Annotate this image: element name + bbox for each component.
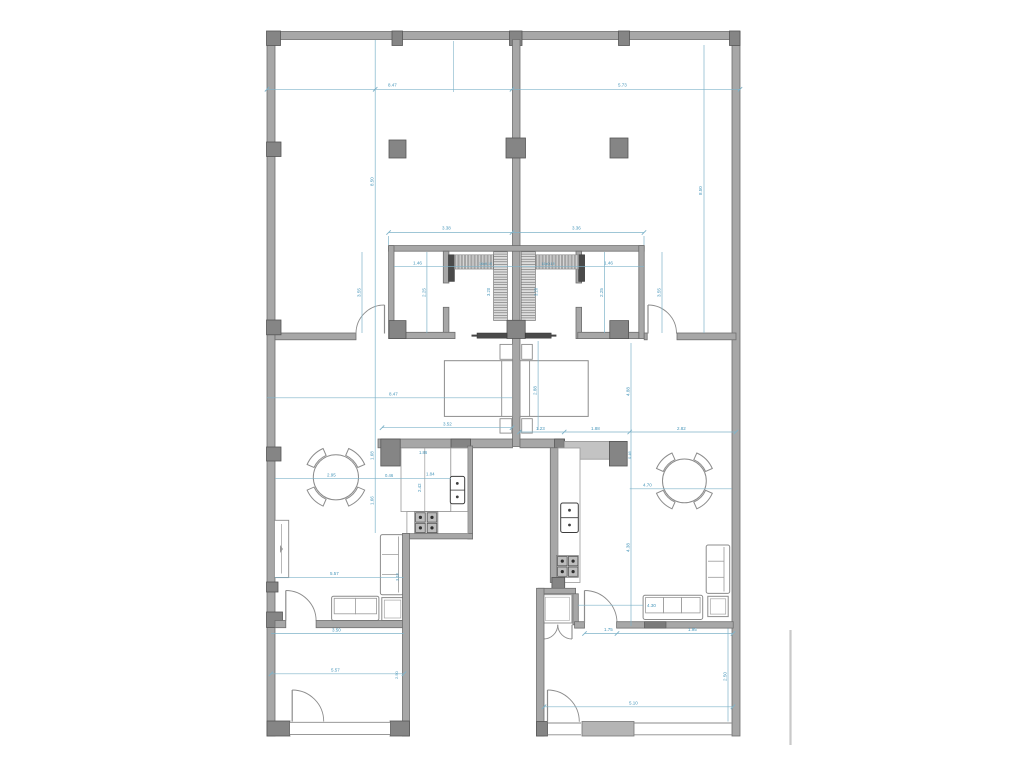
svg-text:4.70: 4.70 — [643, 482, 652, 487]
svg-text:1.68: 1.68 — [370, 451, 375, 460]
svg-text:8.47: 8.47 — [388, 83, 397, 88]
svg-text:1.88: 1.88 — [591, 426, 600, 431]
svg-text:1.66: 1.66 — [370, 496, 375, 505]
svg-text:1.46: 1.46 — [604, 260, 613, 265]
svg-text:3.50: 3.50 — [332, 627, 341, 632]
svg-text:5.10: 5.10 — [629, 700, 638, 705]
svg-text:4.38: 4.38 — [626, 543, 631, 552]
svg-text:3.18: 3.18 — [395, 572, 400, 581]
svg-text:4.30: 4.30 — [647, 603, 656, 608]
svg-text:3.52: 3.52 — [443, 422, 452, 427]
svg-text:16x0.19: 16x0.19 — [542, 262, 555, 266]
svg-text:8.50: 8.50 — [698, 186, 703, 195]
svg-text:3.20: 3.20 — [486, 287, 491, 296]
svg-text:1.86: 1.86 — [419, 450, 428, 455]
svg-text:5.73: 5.73 — [618, 83, 627, 88]
svg-text:16x0.19: 16x0.19 — [479, 262, 492, 266]
svg-text:2.50: 2.50 — [394, 670, 399, 679]
svg-text:8.47: 8.47 — [389, 391, 398, 396]
svg-text:0.46: 0.46 — [385, 473, 394, 478]
svg-text:2.25: 2.25 — [599, 288, 604, 297]
svg-text:1.23: 1.23 — [536, 426, 545, 431]
svg-text:1.84: 1.84 — [426, 472, 435, 477]
svg-text:2.95: 2.95 — [327, 472, 336, 477]
svg-text:4.88: 4.88 — [626, 387, 631, 396]
svg-text:3.38: 3.38 — [442, 226, 451, 231]
svg-text:1.95: 1.95 — [688, 627, 697, 632]
svg-text:3.36: 3.36 — [572, 226, 581, 231]
svg-text:2.82: 2.82 — [677, 426, 686, 431]
svg-text:5.57: 5.57 — [330, 571, 339, 576]
svg-text:2.50: 2.50 — [723, 672, 728, 681]
svg-text:3.55: 3.55 — [657, 288, 662, 297]
svg-text:2.25: 2.25 — [422, 288, 427, 297]
svg-text:5.57: 5.57 — [331, 667, 340, 672]
svg-text:3.55: 3.55 — [357, 288, 362, 297]
svg-text:8.50: 8.50 — [370, 177, 375, 186]
svg-text:3.20: 3.20 — [533, 287, 538, 296]
svg-text:1.46: 1.46 — [413, 260, 422, 265]
svg-text:1.75: 1.75 — [604, 627, 613, 632]
svg-text:0.46: 0.46 — [627, 450, 632, 459]
svg-text:2.42: 2.42 — [417, 483, 422, 492]
svg-text:2.88: 2.88 — [533, 386, 538, 395]
